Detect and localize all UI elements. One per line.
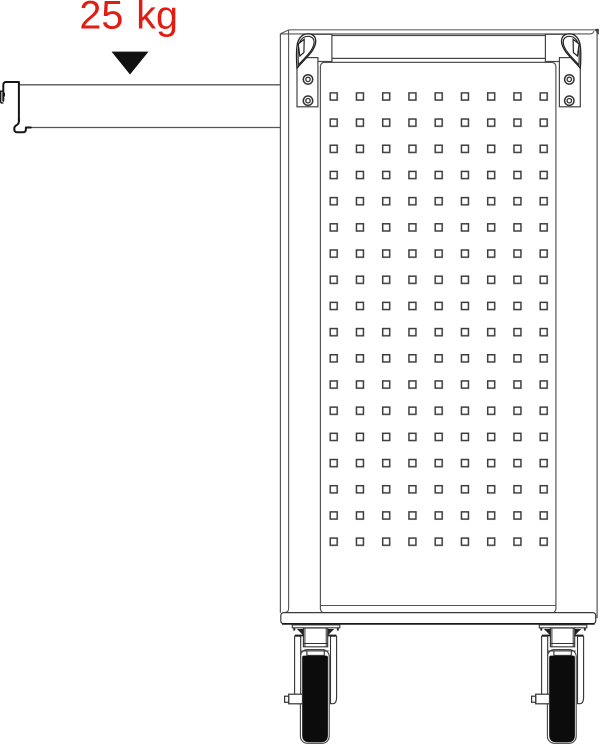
svg-text:kg: kg bbox=[136, 0, 178, 37]
svg-text:25: 25 bbox=[79, 0, 123, 37]
